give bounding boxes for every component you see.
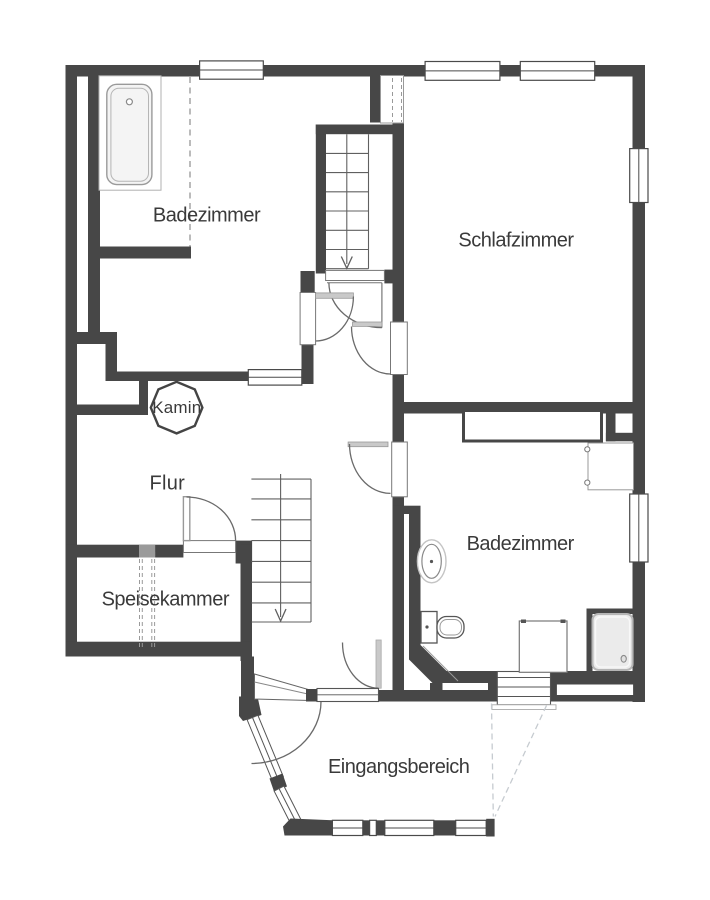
svg-text:Schlafzimmer: Schlafzimmer	[458, 229, 574, 251]
svg-text:Kamin: Kamin	[152, 398, 201, 417]
svg-text:Flur: Flur	[149, 472, 185, 494]
svg-text:Eingangsbereich: Eingangsbereich	[328, 756, 470, 778]
svg-text:Badezimmer: Badezimmer	[467, 533, 575, 555]
svg-text:Badezimmer: Badezimmer	[153, 205, 261, 227]
svg-text:Speisekammer: Speisekammer	[102, 589, 230, 611]
